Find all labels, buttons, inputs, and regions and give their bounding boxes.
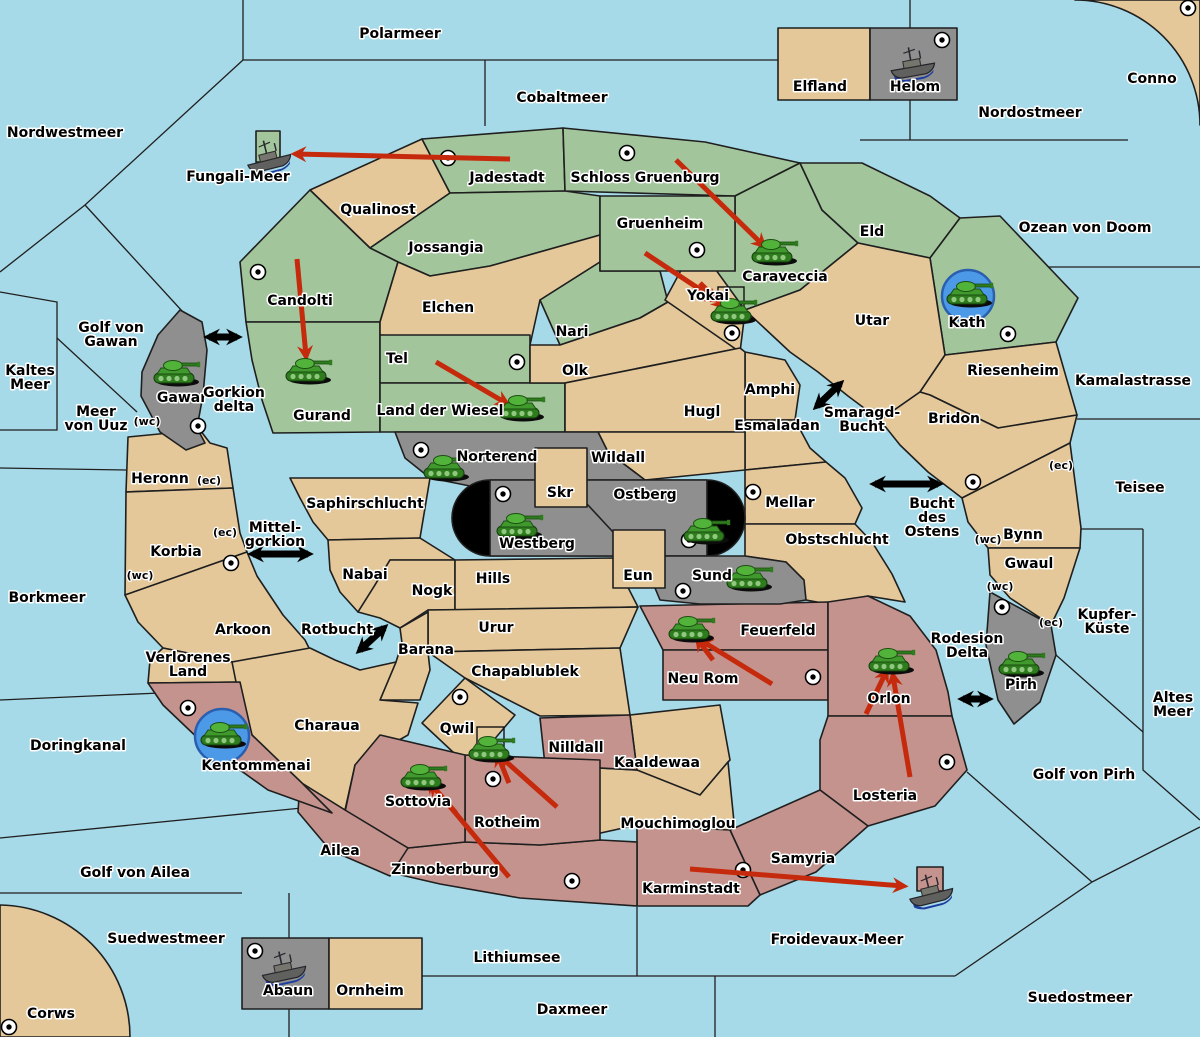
territory-label: Wildall <box>591 450 645 466</box>
territory-label: Land der Wiesel <box>377 403 504 419</box>
territory-label: Nogk <box>412 583 453 599</box>
territory-label: Nilldall <box>548 740 603 756</box>
sea-label: Rotbucht <box>301 622 373 638</box>
supply-center-icon <box>620 146 635 161</box>
territory-label: Jadestadt <box>468 170 545 186</box>
territory-label: Riesenheim <box>967 363 1059 379</box>
territory-label: Hugl <box>684 404 721 420</box>
sea-label: Ozean von Doom <box>1019 220 1152 236</box>
territory-label: Amphi <box>745 382 795 398</box>
region-gruenheim[interactable] <box>600 196 735 271</box>
territory-label: Qwil <box>440 721 474 737</box>
territory-label: Gruenheim <box>617 216 704 232</box>
sea-label: Borkmeer <box>9 590 86 606</box>
supply-center-icon <box>248 944 263 959</box>
territory-label: Kath <box>949 315 986 331</box>
territory-label: Schloss Gruenburg <box>570 170 719 186</box>
territory-label: Gurand <box>293 408 351 424</box>
coast-marker-label: (ec) <box>1049 459 1073 472</box>
territory-label: Kaaldewaa <box>614 755 700 771</box>
supply-center-icon <box>995 600 1010 615</box>
territory-label: Chapablublek <box>471 664 579 680</box>
sea-label: Suedostmeer <box>1028 990 1133 1006</box>
territory-label: Gawar <box>157 390 207 406</box>
territory-label: Skr <box>547 485 573 501</box>
supply-center-icon <box>806 670 821 685</box>
sea-label: KaltesMeer <box>5 363 55 393</box>
sea-label: Kupfer-Küste <box>1078 607 1137 637</box>
territory-label: Ostberg <box>613 487 676 503</box>
territory-label: Conno <box>1127 71 1177 87</box>
territory-label: Heronn <box>131 471 189 487</box>
supply-center-icon <box>935 33 950 48</box>
supply-center-icon <box>690 243 705 258</box>
sea-label: AltesMeer <box>1153 690 1193 720</box>
coast-marker-label: (wc) <box>975 533 1002 546</box>
territory-label: Feuerfeld <box>740 623 815 639</box>
territory-label: Bridon <box>928 411 980 427</box>
territory-label: Ornheim <box>336 983 404 999</box>
coast-marker-label: (wc) <box>134 415 161 428</box>
territory-label: Abaun <box>263 983 313 999</box>
territory-label: Losteria <box>853 788 917 804</box>
territory-label: Urur <box>478 620 513 636</box>
territory-label: Qualinost <box>340 202 416 218</box>
territory-label: Helom <box>890 79 940 95</box>
supply-center-icon <box>1181 1 1196 16</box>
sea-label: Cobaltmeer <box>516 90 607 106</box>
coast-marker-label: (ec) <box>197 474 221 487</box>
territory-label: Korbia <box>150 544 201 560</box>
territory-label: Barana <box>398 642 454 658</box>
sea-label: Lithiumsee <box>473 950 560 966</box>
sea-label: Mittel-gorkion <box>245 520 305 550</box>
sea-label: Teisee <box>1115 480 1164 496</box>
supply-center-icon <box>1001 327 1016 342</box>
territory-label: Neu Rom <box>667 671 738 687</box>
coast-marker-label: (ec) <box>213 526 237 539</box>
territory-label: Saphirschlucht <box>306 496 424 512</box>
territory-label: Nari <box>556 324 589 340</box>
sea-label: Polarmeer <box>359 26 441 42</box>
territory-label: Corws <box>27 1006 75 1022</box>
territory-label: Elfland <box>793 79 847 95</box>
supply-center-icon <box>565 874 580 889</box>
supply-center-icon <box>496 487 511 502</box>
supply-center-icon <box>453 690 468 705</box>
territory-label: Westberg <box>499 536 575 552</box>
sea-label: Kamalastrasse <box>1075 373 1191 389</box>
territory-label: Mellar <box>765 495 814 511</box>
coast-marker-label: (wc) <box>987 580 1014 593</box>
supply-center-icon <box>251 265 266 280</box>
supply-center-icon <box>966 475 981 490</box>
sea-label: Nordostmeer <box>978 105 1081 121</box>
coast-marker-label: (wc) <box>127 569 154 582</box>
supply-center-icon <box>676 584 691 599</box>
territory-label: Nabai <box>342 567 387 583</box>
sea-label: Froidevaux-Meer <box>771 932 904 948</box>
supply-center-icon <box>940 755 955 770</box>
territory-label: Mouchimoglou <box>620 816 735 832</box>
territory-label: Bynn <box>1003 527 1043 543</box>
territory-label: Eld <box>860 224 884 240</box>
supply-center-icon <box>224 556 239 571</box>
sea-label: Suedwestmeer <box>107 931 225 947</box>
territory-label: Utar <box>855 313 890 329</box>
sea-label: Nordwestmeer <box>7 125 123 141</box>
territory-label: Sottovia <box>385 794 451 810</box>
territory-label: Jossangia <box>407 240 483 256</box>
territory-label: Yokai <box>686 288 729 304</box>
territory-label: Caraveccia <box>742 269 828 285</box>
supply-center-icon <box>510 355 525 370</box>
territory-label: Obstschlucht <box>785 532 889 548</box>
territory-label: Norterend <box>457 449 538 465</box>
territory-label: Charaua <box>294 718 359 734</box>
supply-center-icon <box>181 701 196 716</box>
sea-label: Golf von Ailea <box>80 865 190 881</box>
sea-label: Doringkanal <box>30 738 126 754</box>
supply-center-icon <box>746 485 761 500</box>
territory-label: Karminstadt <box>642 881 740 897</box>
region-rotheim[interactable] <box>465 755 600 845</box>
sea-label: Golf von Pirh <box>1033 767 1135 783</box>
territory-label: Eun <box>623 568 653 584</box>
supply-center-icon <box>191 419 206 434</box>
game-map: JadestadtSchloss GruenburgGruenheimCarav… <box>0 0 1200 1037</box>
territory-label: Arkoon <box>215 622 271 638</box>
territory-label: Esmaladan <box>734 418 820 434</box>
territory-label: Sund <box>692 568 732 584</box>
territory-label: Elchen <box>422 300 474 316</box>
territory-label: Hills <box>476 571 510 587</box>
territory-label: Pirh <box>1005 677 1037 693</box>
territory-label: Zinnoberburg <box>391 862 499 878</box>
sea-label: Daxmeer <box>537 1002 608 1018</box>
supply-center-icon <box>486 772 501 787</box>
sea-label: Golf vonGawan <box>78 320 144 350</box>
territory-label: Candolti <box>267 293 333 309</box>
territory-label: Orlon <box>867 691 910 707</box>
region-urur[interactable] <box>428 607 638 652</box>
territory-label: Gwaul <box>1005 556 1054 572</box>
territory-label: Tel <box>386 351 408 367</box>
territory-label: Kentommenai <box>201 758 310 774</box>
territory-label: Olk <box>562 363 589 379</box>
territory-label: Ailea <box>320 843 359 859</box>
supply-center-icon <box>725 326 740 341</box>
supply-center-icon <box>414 443 429 458</box>
territory-label: Rotheim <box>474 815 540 831</box>
coast-marker-label: (ec) <box>1039 616 1063 629</box>
sea-label: Fungali-Meer <box>186 169 290 185</box>
supply-center-icon <box>2 1020 17 1035</box>
territory-label: Samyria <box>771 851 835 867</box>
